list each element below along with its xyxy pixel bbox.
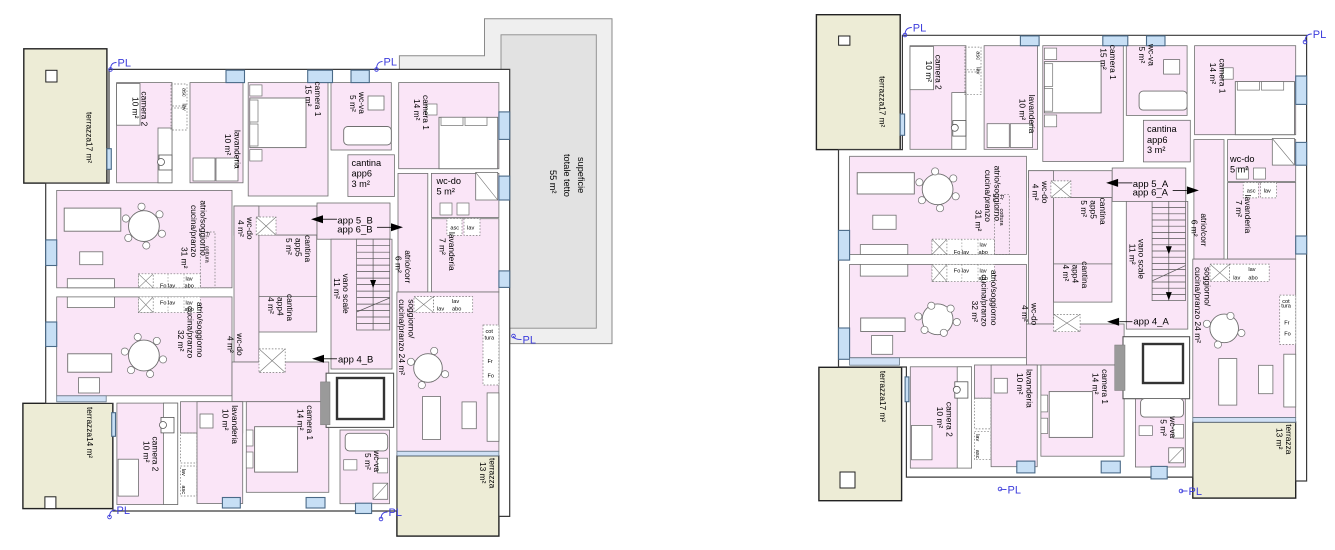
svg-text:app 6_A: app 6_A bbox=[1133, 187, 1169, 198]
svg-text:lav: lav bbox=[1248, 267, 1255, 273]
svg-text:14 m²: 14 m² bbox=[1091, 373, 1101, 395]
svg-text:PL: PL bbox=[117, 505, 130, 517]
svg-text:lav: lav bbox=[980, 269, 987, 275]
svg-text:abo: abo bbox=[1248, 275, 1257, 281]
svg-text:PL: PL bbox=[913, 23, 926, 35]
svg-text:11 m²: 11 m² bbox=[332, 278, 342, 299]
svg-text:10 m²: 10 m² bbox=[924, 61, 934, 83]
svg-text:terrazza17 m²: terrazza17 m² bbox=[84, 112, 94, 163]
svg-text:6 m²: 6 m² bbox=[1190, 220, 1200, 237]
svg-text:32 m²: 32 m² bbox=[176, 330, 186, 352]
svg-text:abo: abo bbox=[979, 276, 988, 282]
svg-text:terrazza17 m²: terrazza17 m² bbox=[878, 371, 888, 422]
svg-text:tura: tura bbox=[1281, 304, 1292, 310]
svg-text:supeficie: supeficie bbox=[576, 157, 586, 193]
svg-text:Fr: Fr bbox=[488, 359, 493, 365]
svg-text:lav: lav bbox=[186, 301, 193, 307]
svg-text:5 m²: 5 m² bbox=[284, 238, 294, 255]
svg-text:5 m²: 5 m² bbox=[348, 95, 358, 112]
svg-text:4 m²: 4 m² bbox=[1030, 184, 1040, 201]
svg-text:14 m²: 14 m² bbox=[296, 409, 306, 431]
svg-text:app 4_B: app 4_B bbox=[338, 355, 373, 366]
svg-text:3 m²: 3 m² bbox=[1147, 145, 1165, 155]
svg-text:cottura: cottura bbox=[204, 246, 210, 264]
svg-text:Fo lav: Fo lav bbox=[954, 269, 969, 275]
svg-text:14 m²: 14 m² bbox=[1208, 63, 1218, 85]
svg-text:32 m²: 32 m² bbox=[970, 301, 980, 323]
svg-text:7 m²: 7 m² bbox=[438, 238, 448, 255]
svg-text:4 m²: 4 m² bbox=[266, 297, 276, 314]
svg-text:10 m²: 10 m² bbox=[221, 409, 231, 431]
svg-text:cucina/pranzo 24 m²: cucina/pranzo 24 m² bbox=[1193, 267, 1203, 343]
svg-text:13 m²: 13 m² bbox=[478, 462, 488, 484]
svg-text:cottura: cottura bbox=[998, 209, 1004, 227]
svg-text:31 m²: 31 m² bbox=[974, 210, 984, 232]
svg-text:Fo lav: Fo lav bbox=[160, 301, 175, 307]
svg-text:lav: lav bbox=[1233, 275, 1240, 281]
svg-text:asc: asc bbox=[450, 226, 459, 232]
svg-text:4 m²: 4 m² bbox=[1061, 265, 1071, 282]
svg-text:cucina/pranzo 24 m²: cucina/pranzo 24 m² bbox=[397, 299, 407, 375]
svg-text:4 m²: 4 m² bbox=[236, 220, 246, 237]
svg-text:lav: lav bbox=[1264, 188, 1271, 194]
svg-text:PL: PL bbox=[118, 58, 131, 70]
svg-text:lav: lav bbox=[980, 243, 987, 249]
svg-text:app6: app6 bbox=[352, 169, 372, 179]
svg-text:terrazza17 m²: terrazza17 m² bbox=[878, 76, 888, 127]
svg-text:7 m²: 7 m² bbox=[1234, 200, 1244, 217]
svg-text:6 m²: 6 m² bbox=[394, 256, 404, 273]
svg-text:Fo: Fo bbox=[1284, 331, 1291, 337]
svg-text:3 m²: 3 m² bbox=[352, 179, 370, 189]
svg-text:10 m²: 10 m² bbox=[1018, 99, 1028, 121]
svg-text:lav: lav bbox=[186, 277, 193, 283]
svg-text:PL: PL bbox=[1313, 29, 1326, 41]
svg-text:15 m²: 15 m² bbox=[304, 85, 314, 107]
svg-text:Fr: Fr bbox=[998, 195, 1004, 200]
svg-text:4 m²: 4 m² bbox=[1020, 305, 1030, 322]
svg-text:5 m²: 5 m² bbox=[363, 453, 373, 470]
svg-text:totale tetto: totale tetto bbox=[562, 154, 572, 197]
svg-text:asc: asc bbox=[1247, 188, 1256, 194]
svg-text:10 m²: 10 m² bbox=[1015, 373, 1025, 395]
svg-text:55 m²: 55 m² bbox=[548, 170, 558, 194]
svg-text:lav: lav bbox=[974, 67, 980, 74]
svg-text:4 m²: 4 m² bbox=[226, 336, 236, 353]
svg-text:lav: lav bbox=[452, 299, 459, 305]
svg-text:10 m²: 10 m² bbox=[130, 97, 140, 119]
svg-text:10 m²: 10 m² bbox=[223, 134, 233, 156]
svg-text:31 m²: 31 m² bbox=[180, 247, 190, 269]
svg-text:Fr: Fr bbox=[1284, 321, 1289, 327]
svg-text:asc: asc bbox=[974, 51, 980, 60]
svg-text:lav: lav bbox=[180, 104, 186, 111]
svg-text:app 6_B: app 6_B bbox=[337, 225, 372, 236]
svg-text:PL: PL bbox=[1008, 485, 1021, 497]
svg-text:asc: asc bbox=[180, 485, 186, 494]
svg-text:PL: PL bbox=[523, 335, 536, 347]
svg-text:app6: app6 bbox=[1147, 135, 1167, 145]
svg-text:asc: asc bbox=[180, 88, 186, 97]
svg-text:asc: asc bbox=[974, 450, 980, 459]
svg-text:PL: PL bbox=[389, 507, 402, 519]
svg-text:5 m²: 5 m² bbox=[1079, 200, 1089, 217]
svg-text:app 4_A: app 4_A bbox=[1133, 316, 1169, 327]
svg-text:wc-do: wc-do bbox=[436, 176, 462, 186]
svg-text:abo: abo bbox=[979, 250, 988, 256]
svg-text:lav: lav bbox=[437, 307, 444, 313]
svg-text:10 m²: 10 m² bbox=[935, 407, 945, 429]
svg-text:5 m²: 5 m² bbox=[1137, 47, 1147, 64]
svg-text:PL: PL bbox=[1189, 486, 1202, 498]
svg-text:Fo lav: Fo lav bbox=[160, 284, 175, 290]
svg-text:cantina: cantina bbox=[352, 158, 383, 168]
svg-text:abo: abo bbox=[185, 307, 194, 313]
svg-text:5 m²: 5 m² bbox=[1230, 165, 1248, 175]
svg-text:5 m²: 5 m² bbox=[1158, 419, 1168, 436]
svg-text:wc-do: wc-do bbox=[1229, 154, 1255, 164]
svg-text:abo: abo bbox=[185, 284, 194, 290]
svg-text:Fr: Fr bbox=[204, 232, 210, 237]
svg-text:abo: abo bbox=[452, 307, 461, 313]
svg-text:tura: tura bbox=[485, 336, 496, 342]
svg-text:5 m²: 5 m² bbox=[437, 187, 455, 197]
svg-text:15 m²: 15 m² bbox=[1099, 48, 1109, 70]
svg-text:14 m²: 14 m² bbox=[412, 99, 422, 121]
svg-text:Fo lav: Fo lav bbox=[954, 250, 969, 256]
svg-text:lav: lav bbox=[467, 226, 474, 232]
svg-text:lav: lav bbox=[974, 434, 980, 441]
svg-text:Fo: Fo bbox=[488, 374, 495, 380]
svg-text:lav: lav bbox=[180, 469, 186, 476]
svg-text:10 m²: 10 m² bbox=[141, 441, 151, 463]
svg-text:terrazza14 m²: terrazza14 m² bbox=[85, 407, 95, 458]
svg-text:cot: cot bbox=[486, 329, 494, 335]
svg-text:cantina: cantina bbox=[1147, 124, 1178, 134]
svg-text:11 m²: 11 m² bbox=[1127, 244, 1137, 265]
svg-text:13 m²: 13 m² bbox=[1275, 428, 1285, 450]
svg-text:PL: PL bbox=[384, 57, 397, 69]
